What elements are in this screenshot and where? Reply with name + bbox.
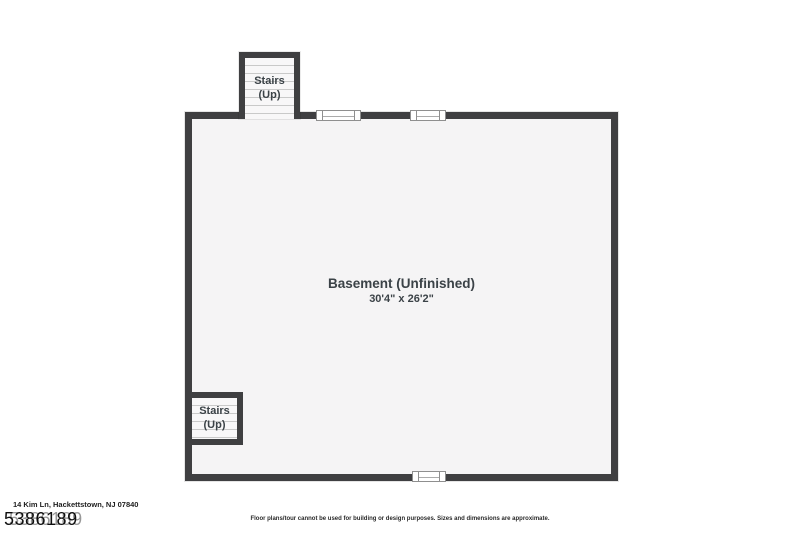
window-jamb-right bbox=[354, 111, 355, 120]
window-jamb-right bbox=[439, 111, 440, 120]
window-jamb-right bbox=[439, 472, 440, 481]
window-pane-line bbox=[323, 116, 354, 117]
stairs-top-label-line2: (Up) bbox=[259, 89, 281, 103]
window-icon bbox=[410, 110, 446, 121]
stairs-bottom-label-line1: Stairs bbox=[199, 405, 230, 419]
window-jamb-left bbox=[418, 472, 419, 481]
floor-plan-page: Basement (Unfinished) 30'4" x 26'2" Stai… bbox=[0, 0, 800, 533]
stairs-up-bottom: Stairs (Up) bbox=[192, 392, 243, 445]
room-label: Basement (Unfinished) 30'4" x 26'2" bbox=[185, 276, 618, 307]
listing-number: 5386189 bbox=[4, 509, 78, 530]
window-pane-line bbox=[419, 477, 439, 478]
window-icon bbox=[316, 110, 361, 121]
window-pane-line bbox=[417, 116, 439, 117]
window-jamb-left bbox=[416, 111, 417, 120]
stairs-top-label-line1: Stairs bbox=[254, 75, 285, 89]
window-jamb-left bbox=[322, 111, 323, 120]
room-name: Basement (Unfinished) bbox=[185, 276, 618, 292]
window-icon bbox=[412, 471, 446, 482]
room-dimensions: 30'4" x 26'2" bbox=[185, 292, 618, 307]
property-address: 14 Kim Ln, Hackettstown, NJ 07840 bbox=[13, 500, 138, 509]
stairs-up-top: Stairs (Up) bbox=[239, 52, 300, 119]
disclaimer-text: Floor plans/tour cannot be used for buil… bbox=[0, 516, 800, 522]
stairs-bottom-label-line2: (Up) bbox=[204, 419, 226, 433]
